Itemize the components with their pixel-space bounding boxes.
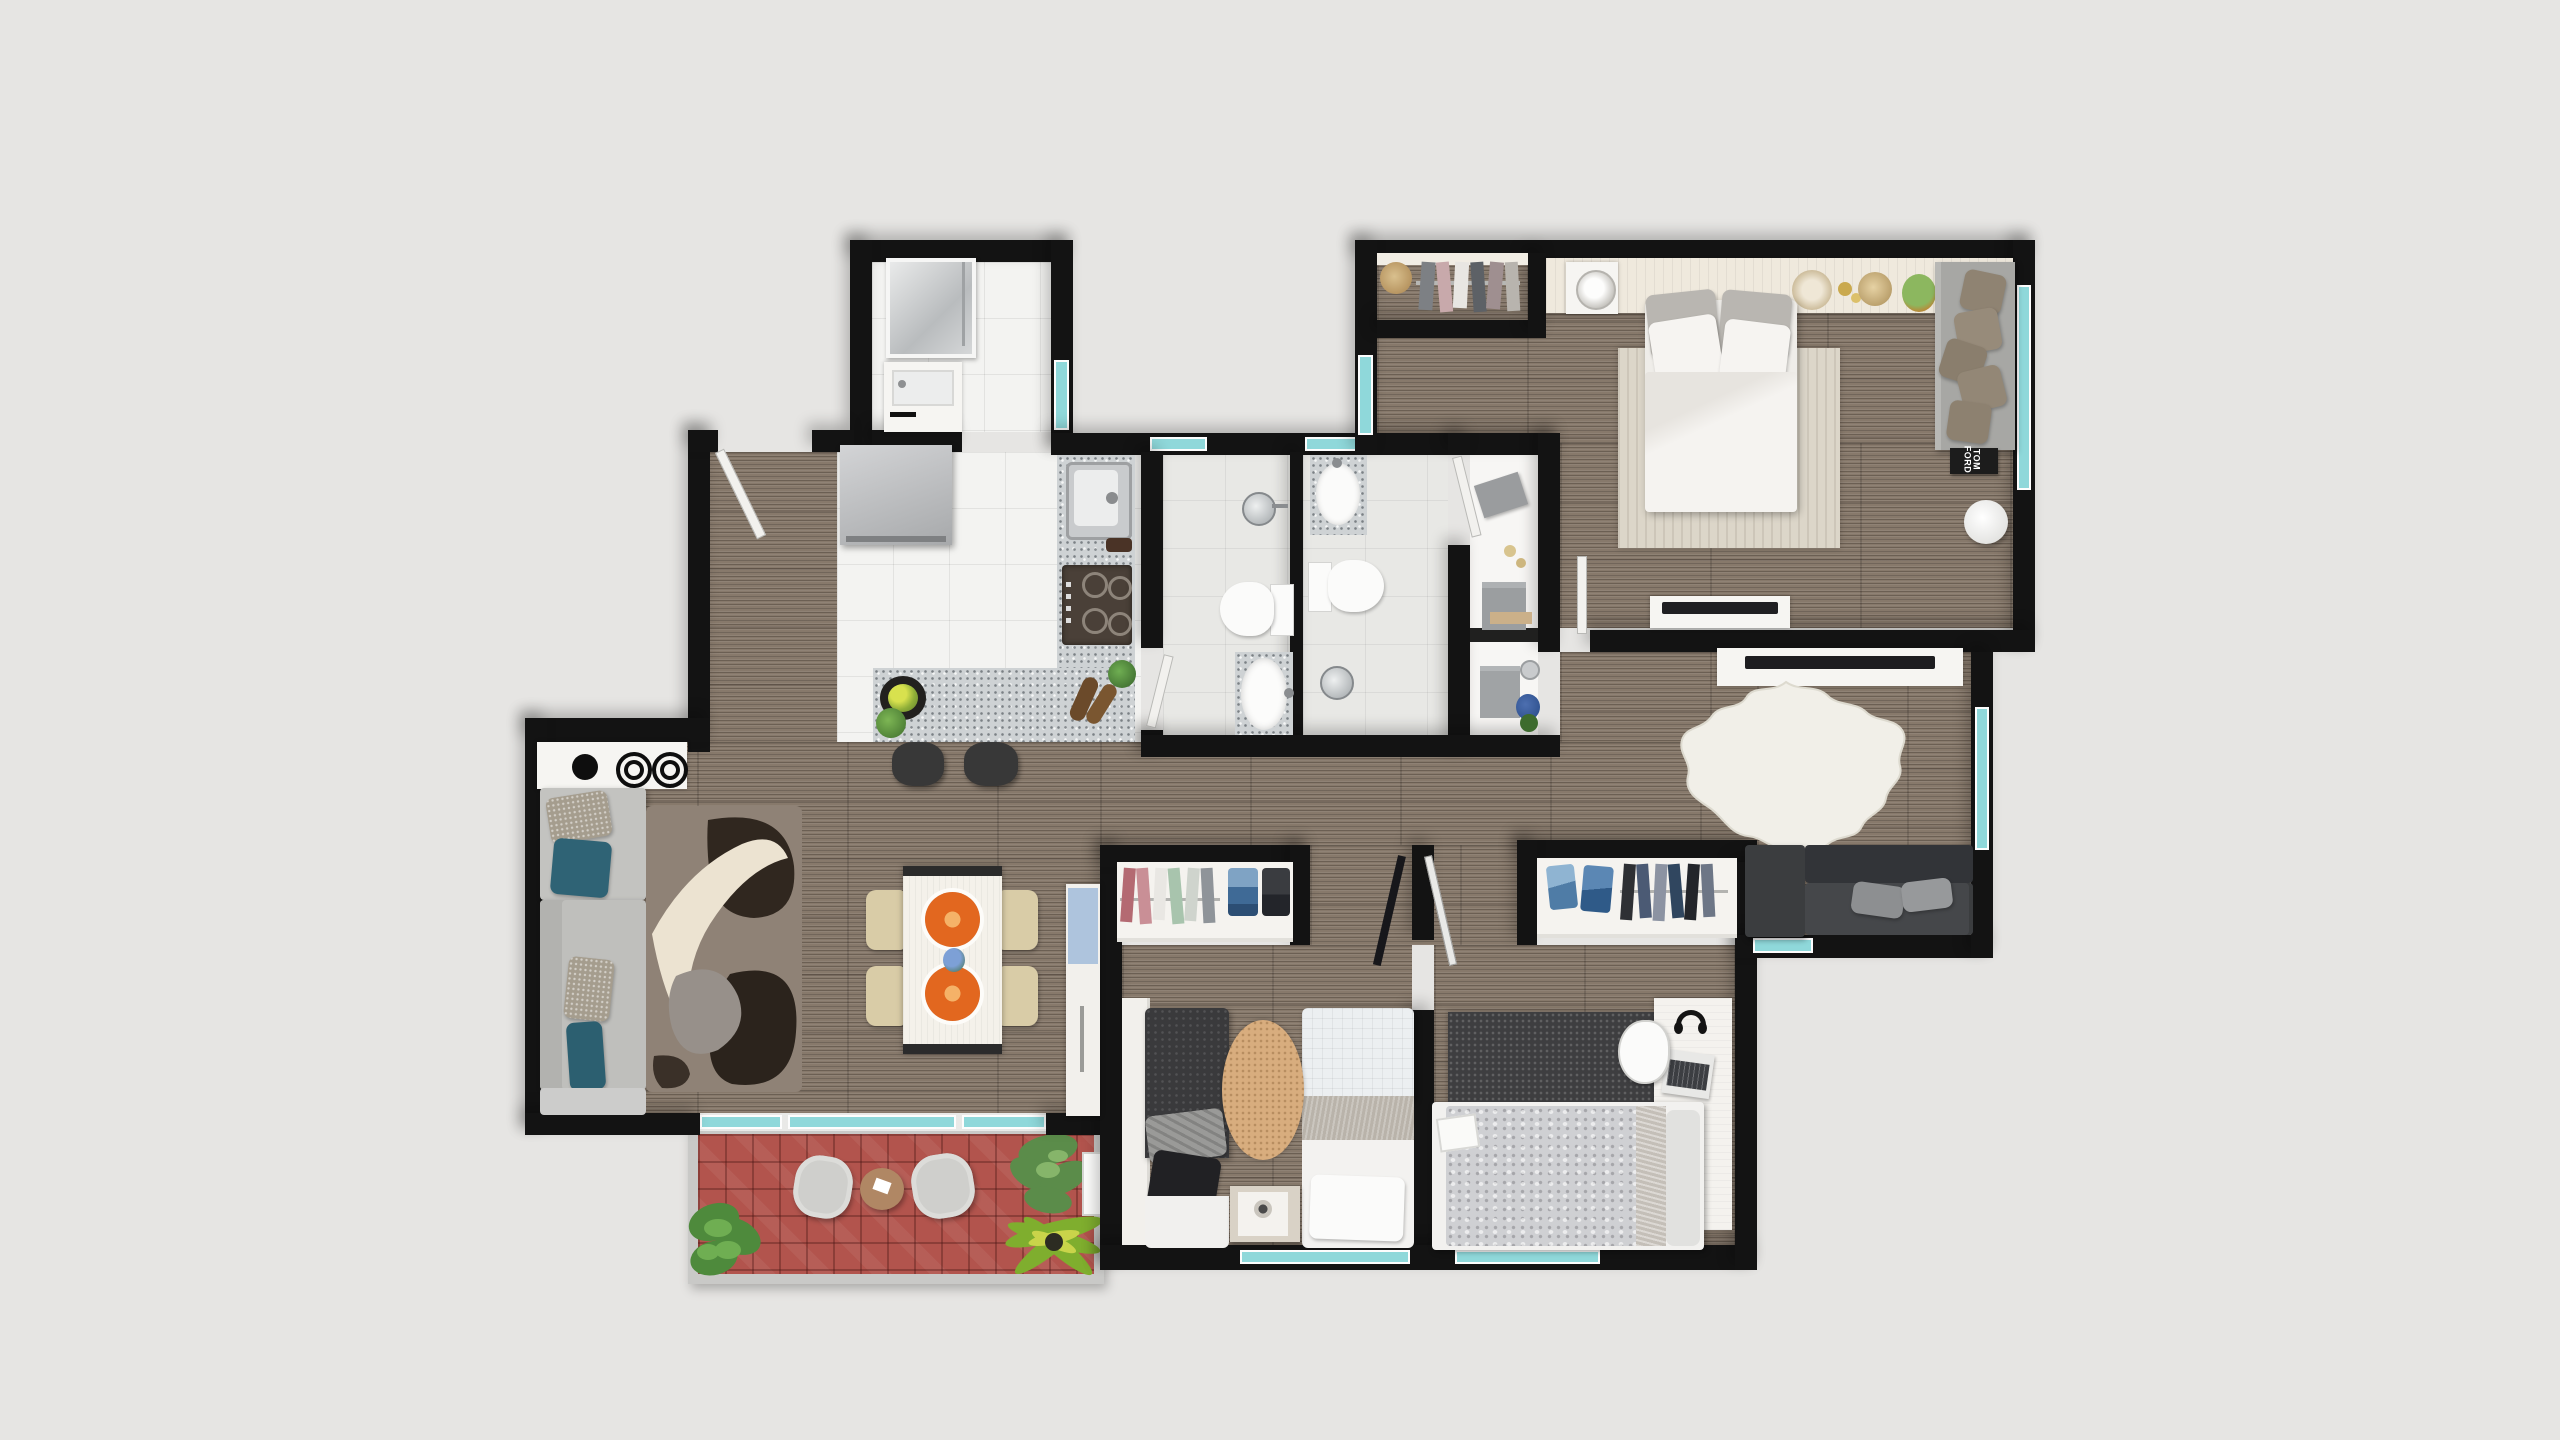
platter-2: [925, 966, 980, 1021]
balcony-plant-left: [684, 1192, 768, 1284]
bath2-round-sink: [1320, 666, 1354, 700]
master-right-window: [2017, 285, 2031, 490]
floor-plan: TOM FORD: [0, 0, 2560, 1440]
counter-bowl: [572, 754, 598, 780]
utility-candle-2: [1516, 558, 1526, 568]
dining-cabinet-handle: [1080, 1006, 1084, 1072]
headphones-ear-right: [1698, 1022, 1707, 1034]
family-bottom-window: [1753, 938, 1813, 953]
master-left-window: [1358, 355, 1373, 435]
bed3-pillow: [1666, 1110, 1700, 1246]
fridge: [840, 445, 952, 545]
bath1-tub-faucet: [1284, 688, 1294, 698]
light-sofa-throw-teal: [566, 1021, 607, 1091]
master-clothes-3: [1453, 262, 1469, 309]
cowhide-rug: [1668, 676, 1924, 860]
utility-candle-1: [1504, 545, 1516, 557]
bathroom2-window: [1305, 437, 1357, 451]
desk-chair: [1618, 1020, 1670, 1084]
dining-chair-1: [866, 890, 904, 950]
counter-plant: [1108, 660, 1136, 688]
bed2-right-quilt: [1302, 1008, 1414, 1100]
master-lamp: [1576, 270, 1616, 310]
laptop-keyboard: [1666, 1059, 1709, 1090]
platter-1: [925, 892, 980, 947]
vanity-faucet: [898, 380, 906, 388]
stool-1: [892, 742, 944, 786]
living-tv: [1745, 656, 1935, 669]
vanity-basin: [892, 370, 954, 406]
light-sofa-pillow-speckled-2: [563, 956, 615, 1022]
balcony-window-2: [788, 1115, 956, 1129]
master-basket: [1858, 272, 1892, 306]
floor-living-upper: [1100, 742, 1757, 845]
stool-2: [964, 742, 1018, 786]
burner-4: [1108, 612, 1132, 636]
dark-sofa-pillow-2: [1900, 877, 1953, 913]
cooktop-knobs: [1066, 582, 1071, 630]
closet3-jeans-2: [1580, 865, 1614, 913]
dining-chair-3: [1000, 890, 1038, 950]
bed2-right-pillow: [1309, 1174, 1405, 1241]
bath1-faucet: [1272, 504, 1288, 508]
light-sofa-armrest: [540, 1088, 646, 1115]
shag-rug: [646, 806, 802, 1092]
bath1-round-sink: [1242, 492, 1276, 526]
utility-greens: [1520, 714, 1538, 732]
utility-wood-tray: [1490, 612, 1532, 624]
dark-sofa-chaise: [1745, 845, 1805, 937]
wall-closet3-left: [1517, 840, 1537, 945]
bedroom3-window: [1455, 1250, 1600, 1264]
book-title: TOM FORD: [1963, 436, 1986, 484]
bath2-toilet-bowl: [1328, 560, 1384, 612]
bedroom2-oval-rug: [1222, 1020, 1304, 1160]
bedroom2-window: [1240, 1250, 1410, 1264]
master-clothes-6: [1505, 262, 1521, 312]
kitchen-faucet: [1106, 492, 1118, 504]
utility-jar: [1520, 660, 1540, 680]
counter-burner-1: [616, 752, 652, 788]
shower-door-line: [962, 262, 965, 346]
wall-master-closet-divider: [1528, 253, 1546, 338]
master-candle-1: [1838, 282, 1852, 296]
master-hat: [1792, 270, 1832, 310]
bath2-faucet: [1332, 458, 1342, 468]
laundry-window: [1054, 360, 1069, 430]
vanity-handle: [890, 412, 916, 417]
wall-under-master-closet: [1377, 320, 1528, 338]
light-sofa-pillow-teal-1: [550, 838, 613, 899]
closet2-jeans-stack: [1228, 868, 1258, 916]
peninsula-plant: [876, 708, 906, 738]
wall-utility-right: [1538, 433, 1560, 652]
family-right-window: [1975, 707, 1989, 850]
bed3-fur-edge: [1636, 1106, 1666, 1246]
bathroom1-window: [1150, 437, 1207, 451]
burner-2: [1108, 576, 1132, 600]
wall-bath2-right-lower: [1448, 545, 1470, 757]
wall-entry-top-left: [688, 430, 718, 452]
dining-vase: [943, 948, 965, 972]
utility-shelf-divider: [1470, 628, 1538, 642]
bedroom2-lamp: [1254, 1200, 1272, 1218]
headphones-ear-left: [1674, 1022, 1683, 1034]
spice-jars: [1106, 538, 1132, 552]
light-sofa-pillow-speckled-1: [545, 789, 613, 844]
floor-entry-corridor: [705, 452, 837, 742]
counter-burner-2: [652, 752, 688, 788]
dining-chair-2: [866, 966, 904, 1026]
balcony-window-1: [700, 1115, 782, 1129]
bed2-right-fur-band: [1302, 1096, 1414, 1142]
wall-closet2-right: [1290, 845, 1310, 945]
dark-sofa-back: [1805, 845, 1973, 883]
bed3-floor-tray: [1436, 1113, 1480, 1152]
wall-corridor-left: [688, 430, 710, 752]
fridge-handle: [846, 536, 946, 542]
book-table: TOM FORD: [1950, 448, 1998, 474]
bath1-toilet-bowl: [1220, 582, 1274, 636]
master-plant: [1902, 274, 1936, 312]
master-closet-basket: [1380, 262, 1412, 294]
wall-bath2-right-upper: [1448, 433, 1470, 455]
bed2-left-sheet: [1145, 1196, 1229, 1248]
closet2-dark-stack: [1262, 868, 1290, 916]
burner-1: [1082, 572, 1108, 598]
closet3-jeans-1: [1546, 864, 1578, 911]
burner-3: [1082, 608, 1108, 634]
master-tv: [1662, 602, 1778, 614]
master-door-leaf: [1577, 556, 1587, 634]
wall-living-bottom-left: [525, 1113, 700, 1135]
dining-cabinet-glass: [1068, 888, 1098, 964]
wall-living-top: [525, 718, 710, 742]
bath1-tub: [1241, 658, 1287, 730]
master-round-table: [1964, 500, 2008, 544]
wall-bathzone-bottom: [1141, 735, 1560, 757]
utility-box-lower: [1480, 666, 1520, 718]
wall-kitchen-bath1-upper: [1141, 452, 1163, 648]
bath2-oval-sink: [1316, 463, 1360, 525]
master-duvet: [1645, 372, 1797, 512]
dining-chair-4: [1000, 966, 1038, 1026]
wall-laundry-left: [850, 240, 872, 452]
wall-bedroom-divider: [1412, 1010, 1434, 1245]
